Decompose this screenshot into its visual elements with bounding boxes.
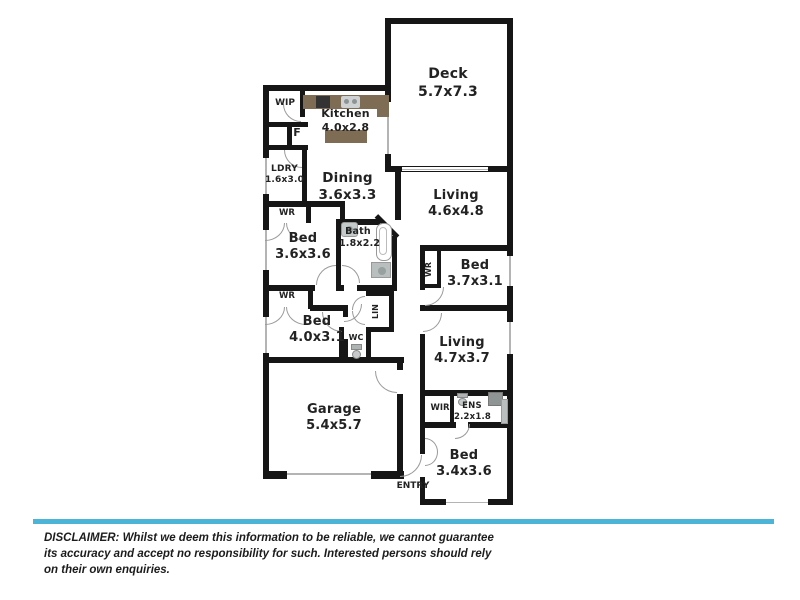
label-wardrobe-a: WR xyxy=(276,209,298,218)
wall-segment xyxy=(488,499,512,505)
vanity-icon xyxy=(371,262,391,278)
room-label-bed-master: Bed3.4x3.6 xyxy=(434,448,494,481)
door-arc xyxy=(455,424,470,439)
label-wardrobe-b: WR xyxy=(276,292,298,301)
disclaimer-text: DISCLAIMER: Whilst we deem this informat… xyxy=(44,530,514,578)
wall-segment xyxy=(507,18,513,172)
label-wc: WC xyxy=(345,334,367,343)
room-label-living-main: Living4.6x4.8 xyxy=(424,188,488,221)
room-label-kitchen: Kitchen4.0x2.8 xyxy=(318,107,373,135)
wall-segment xyxy=(389,291,394,332)
wall-segment xyxy=(420,334,425,392)
label-entry: ENTRY xyxy=(395,482,431,492)
room-label-bed-left: Bed4.0x3.1 xyxy=(284,314,350,347)
door-arc xyxy=(425,287,444,306)
room-label-living-second: Living4.7x3.7 xyxy=(430,335,494,368)
window xyxy=(446,500,488,504)
wall-segment xyxy=(385,18,513,24)
vanity-icon xyxy=(501,399,508,424)
wall-segment xyxy=(263,85,269,477)
room-label-ensuite: ENS2.2x1.8 xyxy=(454,401,490,422)
wall-segment xyxy=(392,236,397,291)
wall-segment xyxy=(263,85,391,91)
room-label-garage: Garage5.4x5.7 xyxy=(298,402,370,435)
toilet-icon xyxy=(352,350,361,359)
wall-segment xyxy=(263,471,287,479)
wardrobe-door-arc xyxy=(265,307,285,325)
label-wip: WIP xyxy=(270,99,300,109)
room-label-dining: Dining3.6x3.3 xyxy=(315,170,380,204)
label-wardrobe-c: WR xyxy=(425,258,434,282)
entry-door-arc xyxy=(400,455,422,477)
wall-segment xyxy=(420,305,512,311)
window xyxy=(402,167,488,171)
wall-segment xyxy=(397,357,403,370)
window xyxy=(507,322,513,354)
window xyxy=(507,256,513,286)
door-arc xyxy=(423,313,442,332)
room-label-bath: Bath1.8x2.2 xyxy=(339,226,377,250)
garage-door-line xyxy=(287,473,371,475)
door-arc xyxy=(342,265,360,283)
label-fridge: F xyxy=(290,127,304,139)
room-label-bed-mid: Bed3.6x3.6 xyxy=(272,231,334,264)
wall-segment xyxy=(395,172,401,220)
room-label-laundry: LDRY1.6x3.0 xyxy=(264,164,305,187)
wall-segment xyxy=(420,499,446,505)
label-wir: WIR xyxy=(428,404,452,413)
wall-segment xyxy=(420,245,512,251)
kitchen-bench-corner xyxy=(377,95,389,117)
wall-segment xyxy=(336,285,344,291)
room-label-deck: Deck5.7x7.3 xyxy=(408,66,488,101)
divider-line xyxy=(33,519,774,524)
wall-segment xyxy=(306,201,311,223)
wall-segment xyxy=(263,357,404,363)
wall-segment xyxy=(437,250,441,288)
label-linen: LIN xyxy=(372,298,381,326)
wall-segment xyxy=(424,422,456,428)
door-arc xyxy=(316,265,336,285)
door-arc xyxy=(375,371,397,393)
room-label-bed-right: Bed3.7x3.1 xyxy=(444,258,506,291)
floorplan-canvas: Deck5.7x7.3 Kitchen4.0x2.8 Dining3.6x3.3… xyxy=(0,0,800,600)
